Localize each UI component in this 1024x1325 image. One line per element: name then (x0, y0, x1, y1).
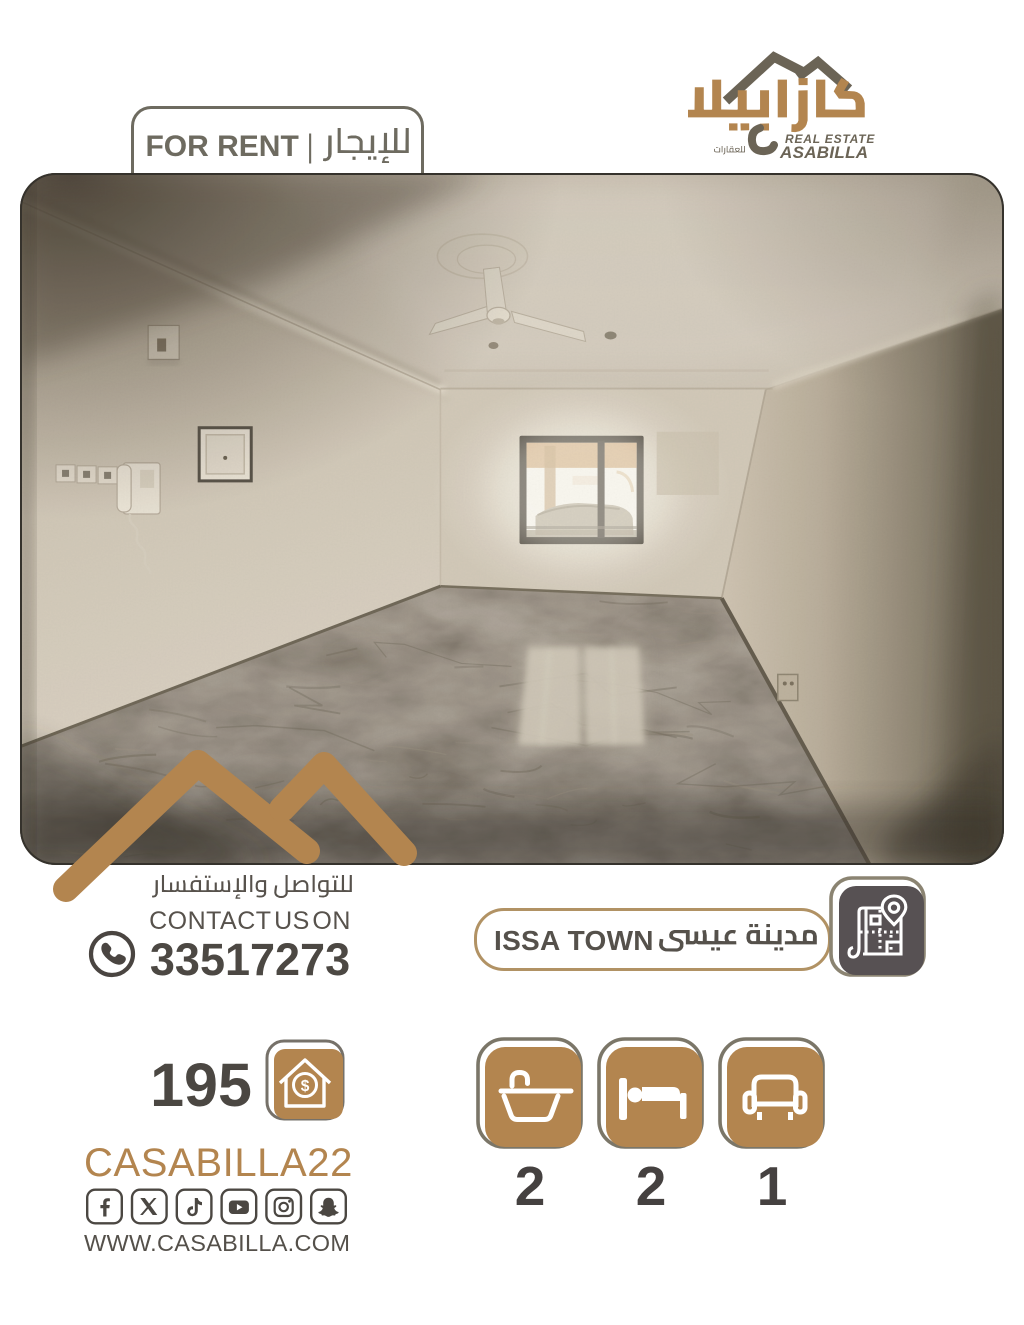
svg-text:ASABILLA: ASABILLA (779, 143, 868, 162)
svg-text:$: $ (301, 1078, 310, 1095)
